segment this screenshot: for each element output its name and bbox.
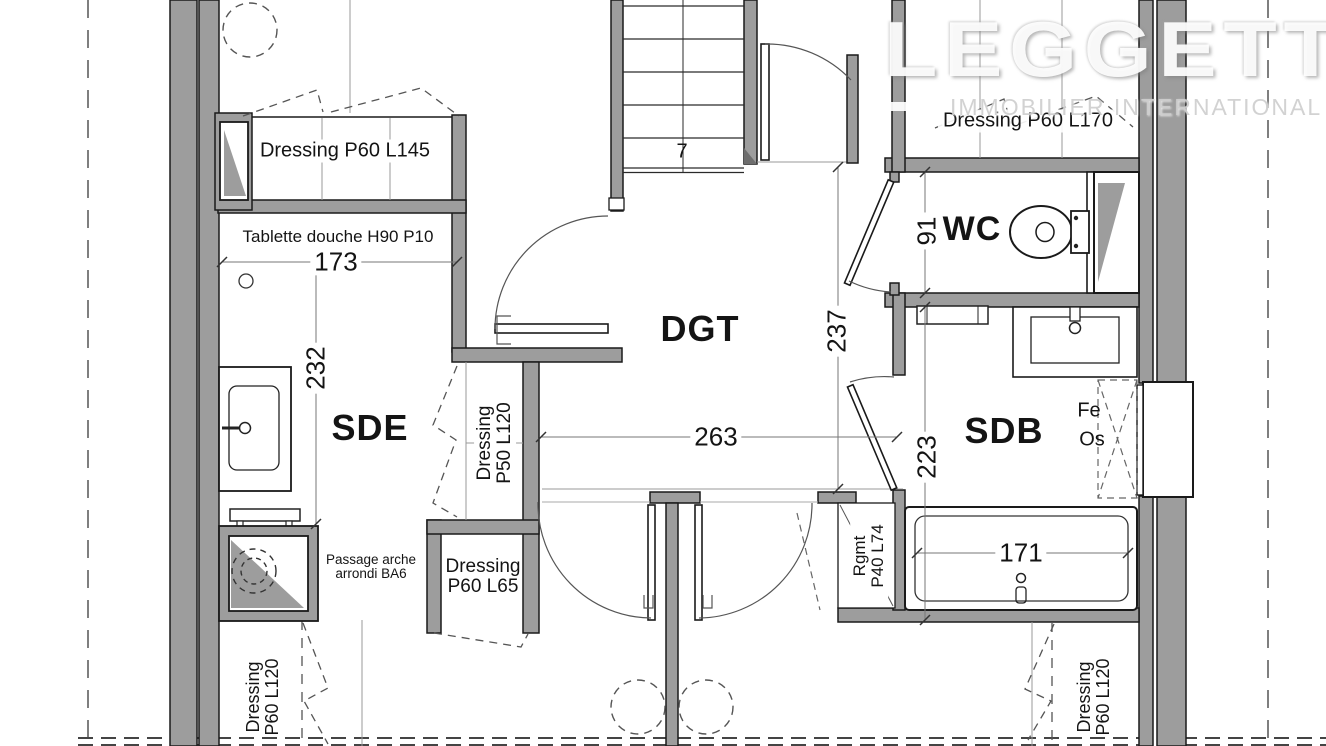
room-label-dgt: DGT — [661, 310, 740, 348]
double-door-alt-dashed — [797, 513, 820, 610]
double-door-stop — [703, 595, 712, 608]
closet-label-rgmt: Rgmt P40 L74 — [850, 514, 888, 598]
wall-sde-right — [452, 115, 466, 352]
sdb-window-box — [1143, 382, 1193, 497]
closet-label-dressing145: Dressing P60 L145 — [255, 140, 435, 163]
stair-rail-endcap — [609, 198, 624, 210]
wall-wc-stub-bottom — [890, 283, 899, 295]
toilet-bolt — [1074, 216, 1078, 220]
left-wall-inner — [199, 0, 219, 746]
fold-marks-right120 — [1025, 624, 1054, 740]
double-door-right-leaf — [695, 505, 702, 620]
stair-left-rail — [611, 0, 623, 211]
wall-sdb-left-upper — [893, 293, 905, 375]
wall-stub-landing-right — [847, 55, 858, 163]
fold-marks-p50 — [433, 366, 457, 517]
floor-plan-canvas: Dressing P60 L145 Tablette douche H90 P1… — [0, 0, 1326, 746]
sdb-door-arc — [850, 377, 894, 382]
landing-door-leaf — [761, 44, 769, 160]
sdb-faucet — [1070, 323, 1081, 334]
dim-label-263: 263 — [690, 423, 741, 450]
fold-marks-p65 — [434, 633, 528, 647]
wc-door-arc — [849, 281, 891, 292]
leggett-logo: LEGGETT IMMOBILIER INTERNATIONAL — [858, 10, 1326, 122]
wall-doubledoor-stem — [666, 503, 678, 746]
logo-wordmark: LEGGETT — [884, 4, 1326, 95]
double-door-right-arc — [699, 503, 812, 618]
ceiling-circle — [223, 3, 277, 57]
ceiling-circle — [611, 680, 665, 734]
wall-p65-top — [427, 520, 539, 534]
room-label-sde: SDE — [331, 409, 408, 447]
wc-door-leaf — [844, 180, 893, 285]
dim-label-91: 91 — [913, 213, 940, 250]
note-fe: Fe — [1077, 401, 1100, 422]
right-wall-outer-bottom — [1157, 496, 1186, 746]
fold-marks-left120 — [303, 623, 328, 744]
right-wall-inner-bottom — [1139, 496, 1153, 746]
note-tablette-douche: Tablette douche H90 P10 — [243, 228, 434, 246]
room-label-wc: WC — [943, 212, 1002, 248]
sdb-faucet-base — [1070, 307, 1080, 321]
note-os: Os — [1079, 430, 1105, 451]
stair-count-label: 7 — [676, 142, 687, 163]
sde-bench — [230, 509, 300, 521]
sdb-radiator — [917, 306, 988, 324]
sde-door-arc — [495, 216, 608, 329]
logo-tagline: IMMOBILIER INTERNATIONAL — [950, 94, 1322, 121]
note-passage-arche: Passage arche arrondi BA6 — [325, 553, 417, 581]
fold-marks-dressing145 — [243, 90, 323, 116]
closet-label-p60-l65: Dressing P60 L65 — [440, 557, 526, 597]
closet-label-right-l120: Dressing P60 L120 — [1075, 650, 1113, 744]
ceiling-circle — [679, 680, 733, 734]
wall-dressing170-wc — [885, 158, 1139, 172]
sdb-window-glass — [1137, 385, 1143, 495]
toilet-bowl — [1010, 206, 1072, 258]
sde-faucet — [240, 423, 251, 434]
wall-p65-left — [427, 520, 441, 633]
room-label-sdb: SDB — [964, 412, 1043, 450]
dim-label-171: 171 — [995, 539, 1046, 566]
dim-label-223: 223 — [913, 431, 940, 482]
closet-label-left-l120: Dressing P60 L120 — [244, 650, 282, 744]
toilet-bolt — [1074, 244, 1078, 248]
sde-door-leaf — [495, 324, 608, 333]
dim-label-173: 173 — [310, 248, 361, 275]
double-door-left-arc — [538, 502, 651, 618]
wall-rgmt-top — [818, 492, 856, 503]
staircase — [609, 0, 847, 211]
wall-dgt-left-horizontal — [452, 348, 622, 362]
wall-doubledoor-cap — [650, 492, 700, 503]
double-door-left-leaf — [648, 505, 655, 620]
left-wall-outer — [170, 0, 197, 746]
closet-label-p50-l120: Dressing P50 L120 — [474, 394, 516, 492]
stair-right-rail — [744, 0, 757, 164]
wall-dressing145-bottom — [218, 200, 466, 213]
landing-door-arc — [765, 44, 851, 80]
toilet-tank — [1071, 211, 1089, 253]
dim-label-237: 237 — [823, 305, 850, 356]
dim-label-232: 232 — [302, 342, 329, 393]
sde-spotlight — [239, 274, 253, 288]
